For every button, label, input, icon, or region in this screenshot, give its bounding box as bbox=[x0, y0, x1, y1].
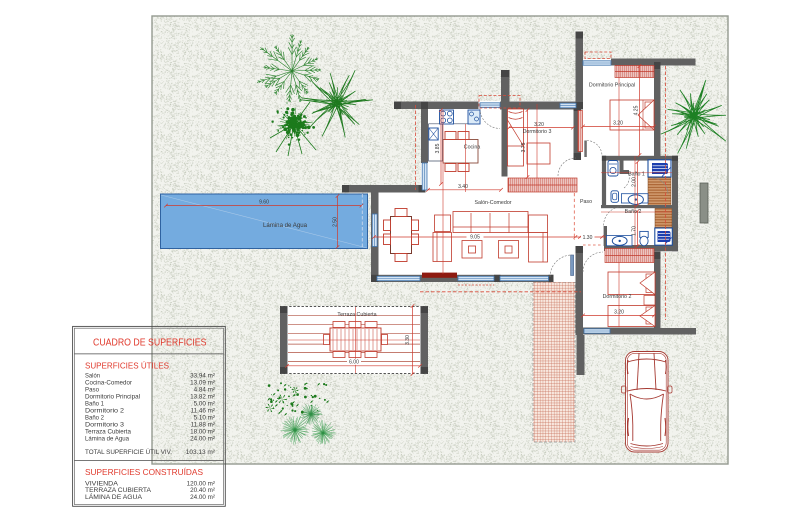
svg-text:5.00 m²: 5.00 m² bbox=[194, 401, 215, 408]
svg-text:Dormitorio Principal: Dormitorio Principal bbox=[85, 394, 140, 401]
svg-text:103.13 m²: 103.13 m² bbox=[186, 449, 216, 456]
svg-text:Terraza Cubierta: Terraza Cubierta bbox=[337, 312, 376, 318]
svg-text:Baño 1: Baño 1 bbox=[628, 172, 645, 178]
svg-text:SUPERFICIES ÚTILES: SUPERFICIES ÚTILES bbox=[85, 360, 170, 370]
svg-text:Lámina de Agua: Lámina de Agua bbox=[85, 436, 129, 443]
svg-text:5.10 m²: 5.10 m² bbox=[194, 415, 215, 422]
svg-text:2.00: 2.00 bbox=[631, 177, 637, 187]
svg-text:11.88 m²: 11.88 m² bbox=[191, 422, 215, 429]
svg-text:TOTAL SUPERFICIE ÚTIL VIV.: TOTAL SUPERFICIE ÚTIL VIV. bbox=[85, 447, 172, 456]
svg-text:Terraza Cubierta: Terraza Cubierta bbox=[85, 429, 131, 436]
svg-text:13.82 m²: 13.82 m² bbox=[190, 394, 215, 401]
svg-text:4.84 m²: 4.84 m² bbox=[194, 387, 215, 394]
svg-text:13.09 m²: 13.09 m² bbox=[190, 380, 215, 387]
svg-text:1.30: 1.30 bbox=[583, 235, 593, 241]
svg-text:3.20: 3.20 bbox=[534, 122, 544, 128]
svg-text:Baño 2: Baño 2 bbox=[85, 415, 104, 422]
svg-text:6.00: 6.00 bbox=[349, 360, 359, 366]
svg-text:4.25: 4.25 bbox=[633, 105, 639, 115]
svg-text:3.20: 3.20 bbox=[614, 310, 624, 316]
svg-text:1.70: 1.70 bbox=[631, 226, 637, 236]
svg-text:3.75: 3.75 bbox=[521, 142, 527, 152]
svg-text:Cocina: Cocina bbox=[464, 145, 481, 151]
svg-text:24.00 m²: 24.00 m² bbox=[190, 436, 215, 443]
svg-text:33.94 m²: 33.94 m² bbox=[190, 373, 215, 380]
svg-text:18.00 m²: 18.00 m² bbox=[190, 429, 215, 436]
svg-text:9.05: 9.05 bbox=[470, 235, 480, 241]
svg-text:Dormitorio 3: Dormitorio 3 bbox=[85, 422, 125, 429]
svg-text:Cocina-Comedor: Cocina-Comedor bbox=[85, 380, 132, 387]
svg-text:24.00 m²: 24.00 m² bbox=[190, 494, 215, 501]
svg-text:2.50: 2.50 bbox=[333, 217, 339, 227]
svg-text:11.46 m²: 11.46 m² bbox=[191, 408, 215, 415]
svg-text:Lámina de Agua: Lámina de Agua bbox=[263, 222, 308, 229]
svg-text:Paso: Paso bbox=[85, 387, 99, 394]
svg-text:Paso: Paso bbox=[580, 199, 592, 205]
svg-text:SUPERFICIES CONSTRUÍDAS: SUPERFICIES CONSTRUÍDAS bbox=[85, 467, 204, 477]
svg-text:3.85: 3.85 bbox=[435, 143, 441, 153]
svg-text:9.60: 9.60 bbox=[259, 200, 269, 206]
svg-text:3.30: 3.30 bbox=[405, 335, 411, 345]
svg-text:Dormitorio 2: Dormitorio 2 bbox=[85, 408, 125, 415]
svg-text:Dormitorio 2: Dormitorio 2 bbox=[603, 294, 632, 300]
svg-text:3.20: 3.20 bbox=[613, 121, 623, 127]
svg-text:Salón: Salón bbox=[85, 373, 100, 380]
svg-text:Dormitorio Principal: Dormitorio Principal bbox=[589, 83, 635, 89]
svg-text:3.40: 3.40 bbox=[458, 184, 468, 190]
svg-text:Dormitorio 3: Dormitorio 3 bbox=[523, 129, 552, 135]
svg-text:LÁMINA DE AGUA: LÁMINA DE AGUA bbox=[85, 492, 143, 501]
svg-text:Salón-Comedor: Salón-Comedor bbox=[474, 200, 511, 206]
svg-text:Baño 1: Baño 1 bbox=[85, 401, 104, 408]
svg-text:CUADRO DE SUPERFICIES: CUADRO DE SUPERFICIES bbox=[93, 337, 207, 348]
svg-text:Baño 2: Baño 2 bbox=[625, 209, 642, 215]
